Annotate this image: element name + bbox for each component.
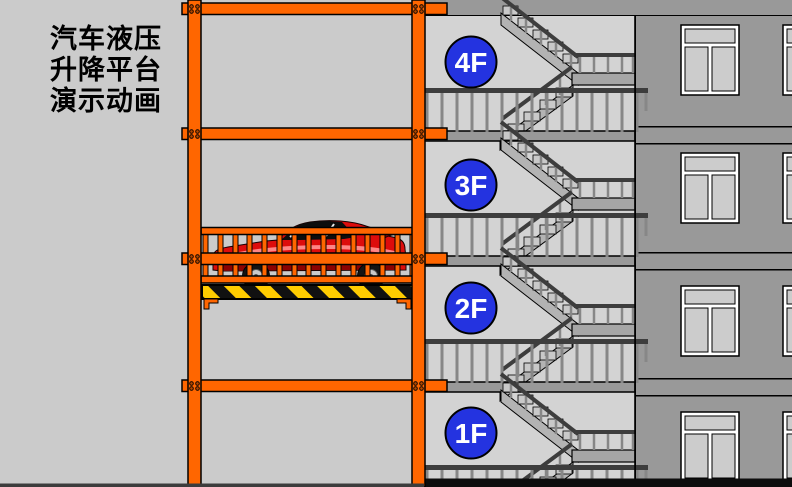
cage-top-rail bbox=[201, 228, 415, 235]
building-section: 4F 3F 2F 1F bbox=[423, 0, 792, 487]
cage-bottom-rail bbox=[201, 276, 415, 283]
floor-label-1f: 1F bbox=[455, 418, 488, 449]
roof-band bbox=[423, 0, 792, 15]
app-title: 汽车液压 升降平台 演示动画 bbox=[28, 24, 184, 117]
partial-window-1f bbox=[783, 412, 792, 482]
app-title-line-1: 汽车液压 bbox=[28, 24, 184, 55]
window-3f bbox=[681, 153, 739, 223]
floor-badge-4f: 4F bbox=[446, 37, 497, 88]
app-title-line-3: 演示动画 bbox=[28, 86, 184, 117]
crossbeam-2f bbox=[182, 253, 447, 265]
column-left bbox=[188, 0, 201, 487]
left-ground-strip bbox=[0, 484, 424, 487]
floor-label-4f: 4F bbox=[455, 47, 488, 78]
floor-label-3f: 3F bbox=[455, 170, 488, 201]
platform-cage bbox=[201, 228, 415, 310]
floor-badge-1f: 1F bbox=[446, 408, 497, 459]
crossbeam-3f bbox=[182, 128, 447, 140]
partial-window-4f bbox=[783, 25, 792, 95]
floor-badge-2f: 2F bbox=[446, 283, 497, 334]
platform-foot-right bbox=[397, 299, 411, 309]
crossbeam-top bbox=[182, 3, 447, 15]
window-1f bbox=[681, 412, 739, 482]
app-title-line-2: 升降平台 bbox=[28, 55, 184, 86]
stairwell-right-wall bbox=[634, 15, 636, 480]
bolt-plates bbox=[190, 5, 424, 391]
column-right bbox=[412, 0, 425, 487]
window-4f bbox=[681, 25, 739, 95]
animation-stage: 4F 3F 2F 1F bbox=[0, 0, 792, 487]
floor-label-2f: 2F bbox=[455, 293, 488, 324]
crossbeam-1f bbox=[182, 380, 447, 392]
partial-window-3f bbox=[783, 153, 792, 223]
ground-strip bbox=[423, 479, 792, 487]
floor-badge-3f: 3F bbox=[446, 160, 497, 211]
platform-foot-left bbox=[204, 299, 218, 309]
crossbeams bbox=[182, 3, 447, 392]
hazard-stripe-band bbox=[202, 285, 413, 299]
window-2f bbox=[681, 286, 739, 356]
partial-window-2f bbox=[783, 286, 792, 356]
